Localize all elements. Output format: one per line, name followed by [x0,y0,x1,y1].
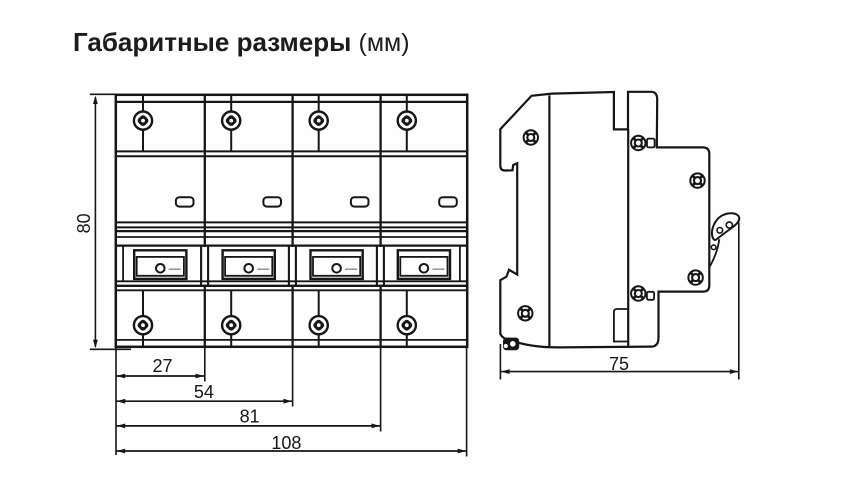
svg-text:75: 75 [609,354,629,374]
svg-text:108: 108 [271,433,301,453]
svg-text:80: 80 [74,213,94,233]
svg-text:54: 54 [194,382,214,402]
svg-text:27: 27 [152,356,172,376]
svg-text:81: 81 [240,407,260,427]
